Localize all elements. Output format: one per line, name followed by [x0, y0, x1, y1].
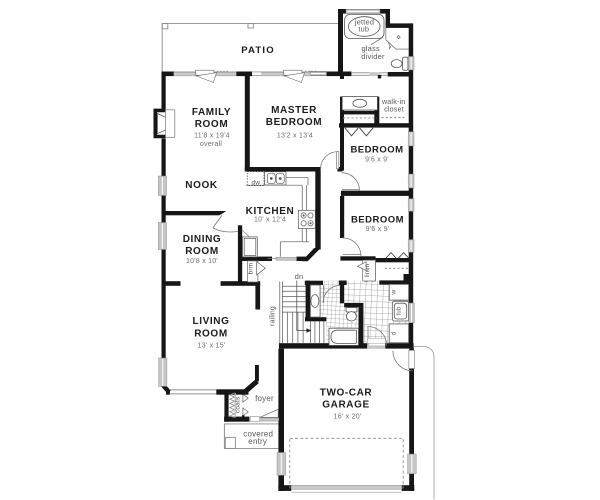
svg-text:railing: railing: [270, 306, 277, 326]
svg-text:divider: divider: [361, 52, 385, 61]
svg-text:KITCHEN: KITCHEN: [246, 206, 295, 217]
svg-text:BEDROOM: BEDROOM: [266, 117, 322, 128]
svg-text:tub: tub: [397, 306, 403, 315]
svg-text:ROOM: ROOM: [194, 329, 228, 340]
svg-text:DINING: DINING: [183, 234, 222, 245]
svg-text:GARAGE: GARAGE: [322, 400, 370, 411]
svg-text:BEDROOM: BEDROOM: [350, 145, 403, 156]
svg-text:13' x 15': 13' x 15': [198, 343, 226, 350]
svg-text:10' x 12'4: 10' x 12'4: [254, 217, 286, 224]
svg-text:entry: entry: [248, 437, 267, 446]
svg-text:FAMILY: FAMILY: [192, 107, 231, 118]
svg-text:d: d: [390, 331, 397, 335]
svg-text:linen: linen: [365, 264, 371, 278]
svg-text:overall: overall: [200, 141, 223, 148]
svg-text:dn: dn: [295, 272, 304, 281]
svg-text:16' x 20': 16' x 20': [334, 414, 362, 421]
svg-text:w: w: [390, 290, 397, 296]
svg-text:foyer: foyer: [255, 394, 274, 403]
svg-text:NOOK: NOOK: [185, 180, 218, 191]
svg-text:PATIO: PATIO: [241, 45, 275, 56]
svg-text:LIVING: LIVING: [193, 316, 230, 327]
svg-text:9'6 x 9': 9'6 x 9': [365, 157, 389, 164]
svg-text:ROOM: ROOM: [195, 119, 229, 130]
svg-text:dw: dw: [251, 179, 260, 186]
svg-text:13'2 x 13'4: 13'2 x 13'4: [277, 133, 313, 140]
svg-text:BEDROOM: BEDROOM: [351, 215, 404, 226]
svg-text:coats: coats: [234, 396, 241, 413]
svg-text:brm: brm: [247, 263, 254, 275]
svg-text:10'8 x 10': 10'8 x 10': [186, 258, 218, 265]
svg-text:9'6 x 9': 9'6 x 9': [366, 226, 390, 233]
svg-text:MASTER: MASTER: [271, 105, 317, 116]
svg-text:closet: closet: [384, 106, 404, 114]
svg-text:tub: tub: [358, 25, 369, 34]
svg-text:11'8 x 19'4: 11'8 x 19'4: [194, 133, 230, 140]
svg-text:ROOM: ROOM: [185, 246, 219, 257]
svg-text:TWO-CAR: TWO-CAR: [320, 388, 373, 399]
